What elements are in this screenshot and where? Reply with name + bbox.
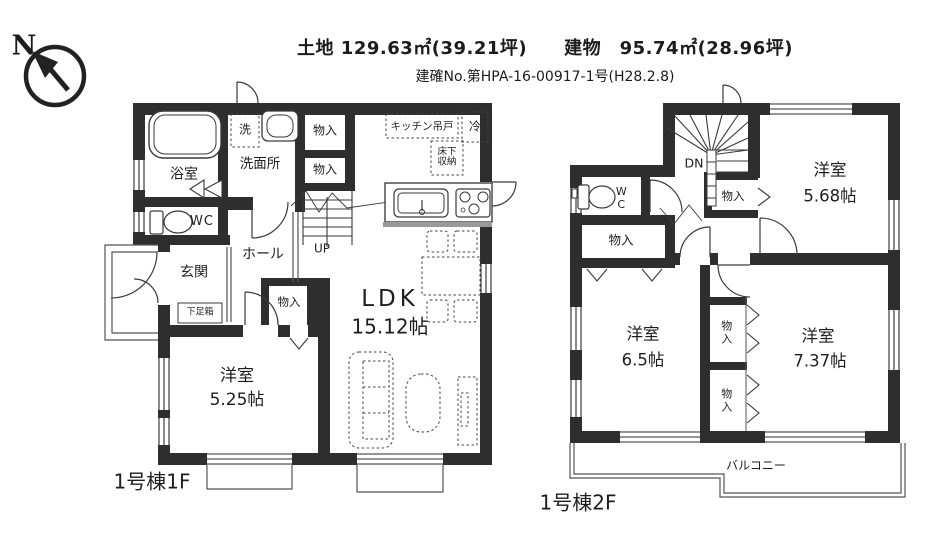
label-storage-mid-1: 物入	[720, 320, 732, 346]
bathtub-icon	[149, 111, 221, 158]
floor1-label: 1号棟1F	[114, 472, 191, 493]
label-balcony: バルコニー	[726, 460, 786, 473]
coffee-table	[406, 374, 440, 432]
label-storage-hall: 物入	[278, 296, 301, 308]
sofa	[349, 352, 393, 448]
floorplan-page: 土地 129.63㎡(39.21坪) 建物 95.74㎡(28.96坪) 建確N…	[0, 0, 939, 537]
dining-chair	[427, 231, 448, 252]
room-size-bedroom-1f: 5.25帖	[210, 392, 265, 410]
room-label-bedroom-a: 洋室	[814, 161, 847, 178]
room-label-bedroom-c: 洋室	[802, 327, 835, 344]
room-size-ldk: 15.12帖	[351, 317, 428, 338]
label-stairs-up: UP	[314, 243, 330, 256]
room-label-wc-1f: WC	[190, 215, 214, 229]
room-label-washroom: 洗面所	[240, 157, 281, 171]
room-label-ldk: LDK	[361, 287, 419, 311]
compass-icon	[26, 47, 84, 105]
label-storage-stairs: 物入	[722, 190, 745, 202]
label-fridge: 冷	[469, 121, 481, 134]
label-underfloor-storage: 床下収納	[436, 148, 458, 169]
toilet-2f-icon	[572, 185, 615, 209]
label-kitchen-cabinet: キッチン吊戸	[391, 121, 454, 132]
label-shoe-box: 下足箱	[186, 308, 213, 317]
label-stairs-down: DN	[685, 156, 704, 169]
floorplan-svg	[0, 0, 939, 537]
label-washer: 洗	[239, 124, 251, 137]
label-storage-top-1: 物入	[313, 125, 337, 138]
room-label-bath: 浴室	[170, 168, 198, 183]
dining-chair	[454, 231, 477, 252]
room-size-bedroom-b: 6.5帖	[622, 351, 665, 368]
room-size-bedroom-a: 5.68帖	[803, 187, 856, 204]
room-label-hall: ホール	[242, 248, 284, 263]
dining-chair	[454, 300, 477, 322]
floor2-label: 1号棟2F	[540, 493, 617, 514]
sofa-cushions	[363, 361, 389, 439]
toilet-1f-icon	[150, 211, 192, 234]
room-label-wc-2f: WC	[615, 185, 627, 211]
room-label-bedroom-b: 洋室	[627, 325, 660, 342]
label-storage-top-2: 物入	[313, 164, 337, 177]
kitchen-counter	[383, 183, 492, 227]
label-storage-left: 物入	[608, 233, 633, 246]
dining-table	[422, 257, 480, 295]
washbasin-icon	[262, 111, 298, 141]
tv	[461, 393, 468, 426]
room-size-bedroom-c: 7.37帖	[793, 352, 846, 369]
room-label-entrance: 玄関	[180, 266, 208, 281]
label-storage-mid-2: 物入	[720, 388, 732, 414]
room-label-bedroom-1f: 洋室	[220, 368, 254, 386]
dining-chair	[427, 300, 448, 322]
floor2-walls	[570, 103, 900, 443]
